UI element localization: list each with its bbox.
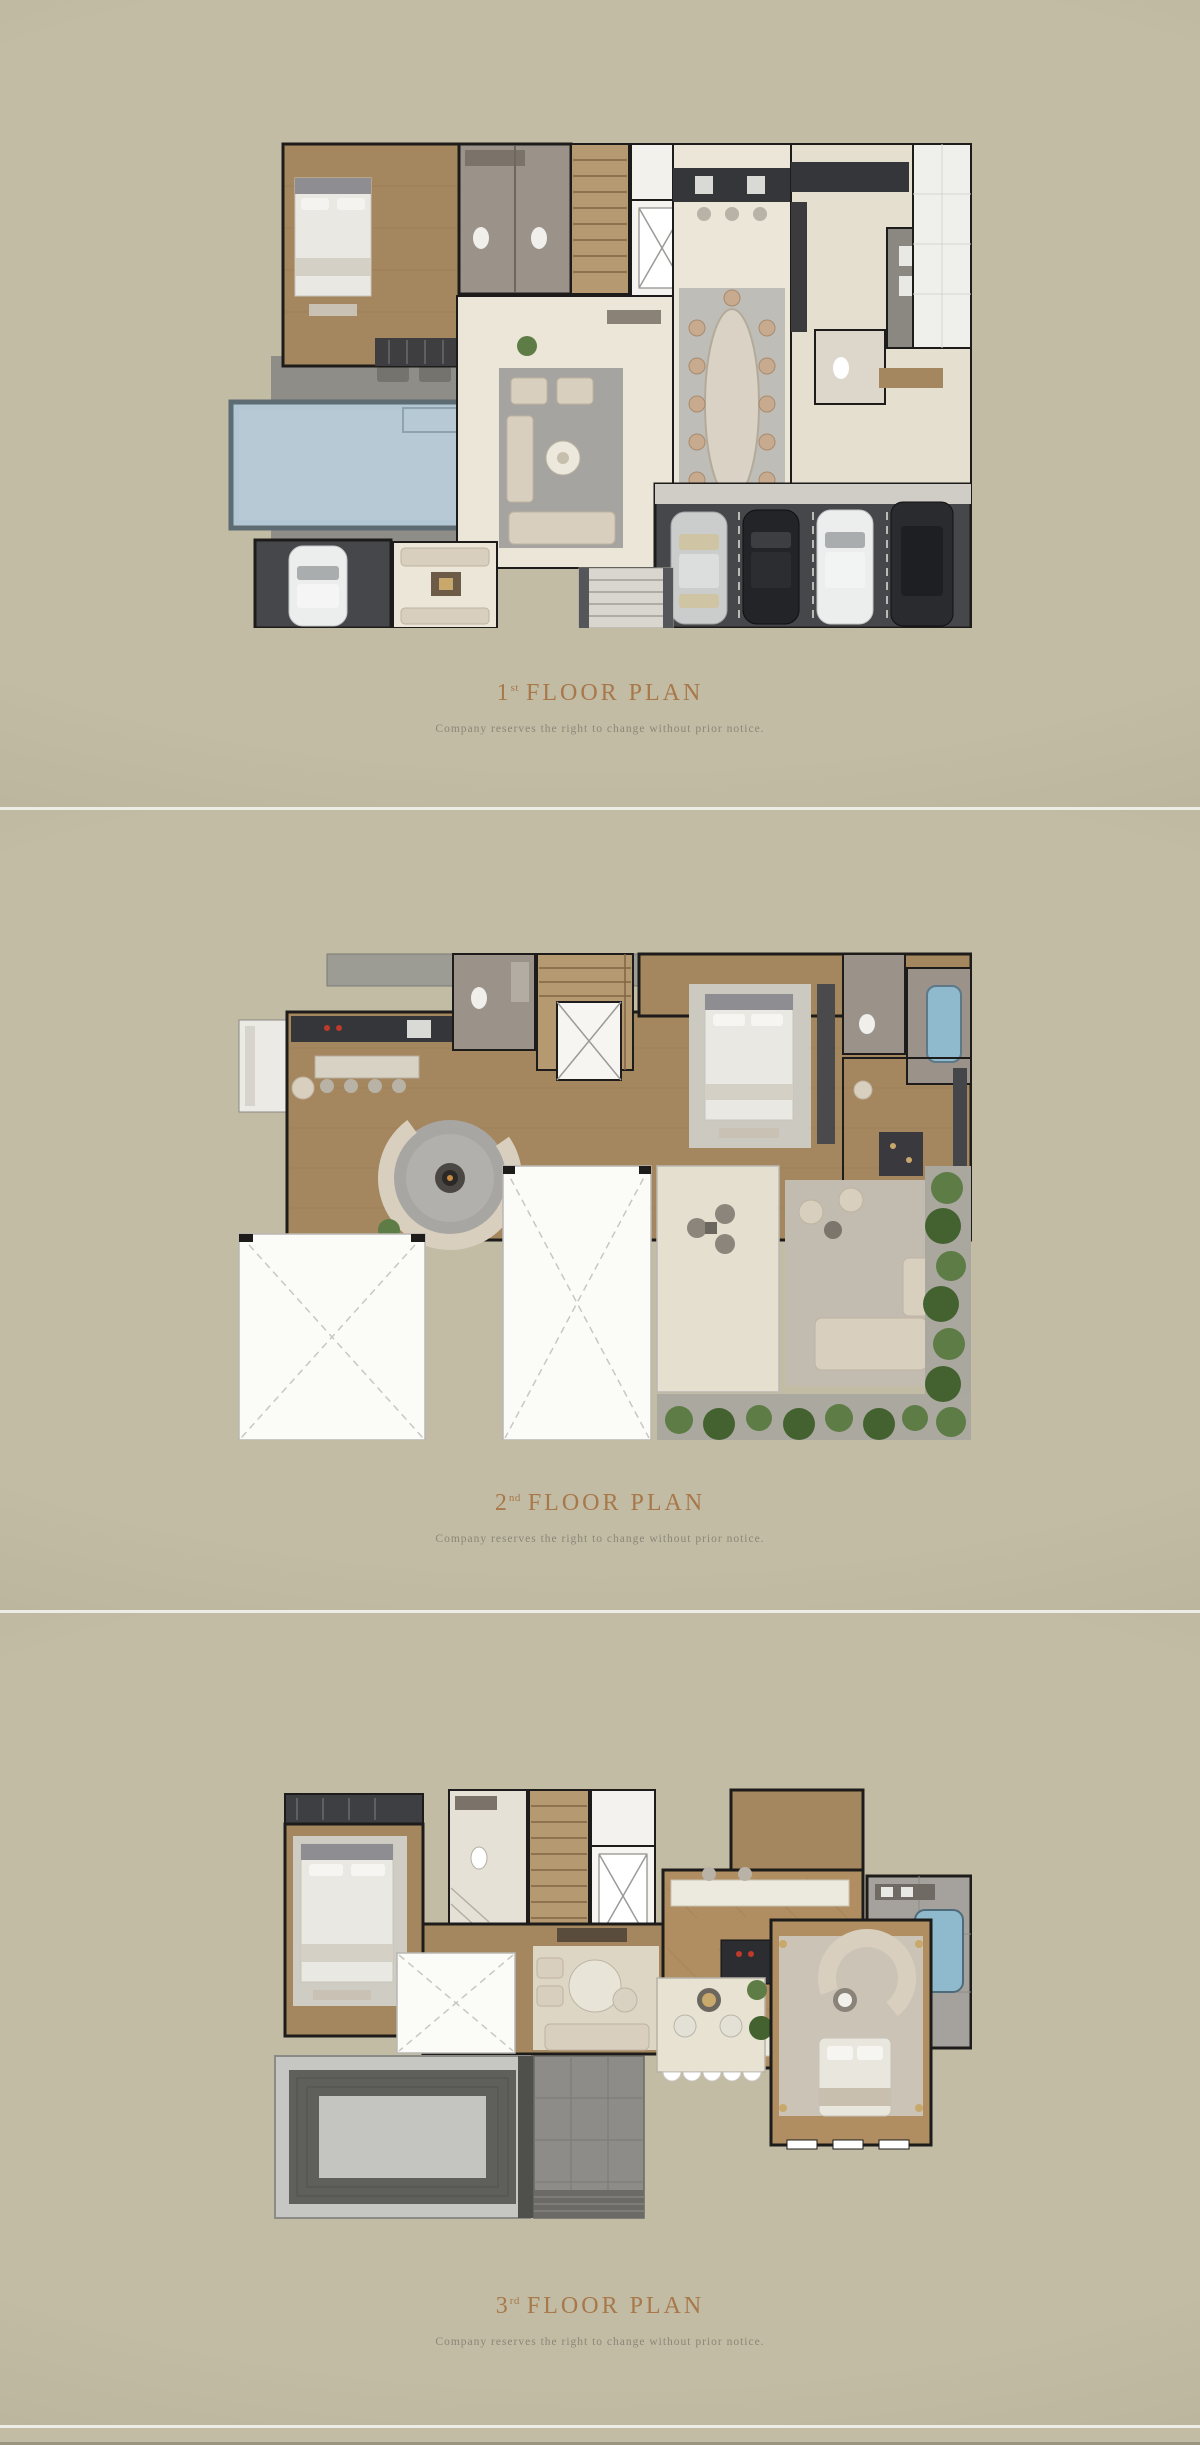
bedroom-suite xyxy=(283,144,459,366)
floor-title-text: FLOOR PLAN xyxy=(526,680,703,706)
floor-plan-brochure-page: 1stFLOOR PLAN Company reserves the right… xyxy=(0,0,1200,2445)
bathroom-4-tub xyxy=(907,968,971,1084)
floor-number: 3 xyxy=(496,2293,510,2319)
car-suv-black xyxy=(891,502,953,626)
bathroom-master xyxy=(459,144,571,294)
floor-1-caption: 1stFLOOR PLAN Company reserves the right… xyxy=(0,680,1200,735)
floor-ordinal: st xyxy=(511,682,519,694)
floor-ordinal: nd xyxy=(509,1492,521,1504)
stair-landing-3 xyxy=(591,1790,655,1846)
terrace-2 xyxy=(657,1166,779,1392)
next-section-peek xyxy=(0,2428,1200,2442)
car-black xyxy=(743,510,799,624)
void-double-height-3 xyxy=(397,1953,515,2053)
floor-3-caption: 3rdFLOOR PLAN Company reserves the right… xyxy=(0,2293,1200,2348)
bathroom-3 xyxy=(843,954,905,1054)
floor-number: 2 xyxy=(495,1490,509,1516)
floor-title-text: FLOOR PLAN xyxy=(527,2293,704,2319)
elevator-2 xyxy=(557,1002,621,1080)
floor-3-section: 3rdFLOOR PLAN Company reserves the right… xyxy=(0,1613,1200,2428)
floor-3-title: 3rdFLOOR PLAN xyxy=(0,2293,1200,2320)
void-double-height-left xyxy=(239,1234,425,1440)
garage-main xyxy=(655,484,971,628)
floor-ordinal: rd xyxy=(510,2295,520,2307)
car-silver xyxy=(671,512,727,624)
kitchen-pantry-wing xyxy=(791,144,971,490)
family-room-2 xyxy=(785,1180,939,1386)
floor-2-disclaimer: Company reserves the right to change wit… xyxy=(0,1533,1200,1545)
floor-2-plan-illustration xyxy=(227,928,972,1440)
patio-tiles xyxy=(518,2056,644,2218)
roof-terrace xyxy=(275,2056,530,2218)
bathroom-5 xyxy=(449,1790,527,1924)
living-room-3 xyxy=(533,1946,659,2050)
car-white-2 xyxy=(289,546,347,626)
family-room-3 xyxy=(771,1920,931,2149)
floor-1-disclaimer: Company reserves the right to change wit… xyxy=(0,723,1200,735)
entry-steps xyxy=(579,568,673,628)
floor-1-plan-illustration xyxy=(227,116,972,628)
curtain-scallops xyxy=(663,2072,761,2081)
floor-2-title: 2ndFLOOR PLAN xyxy=(0,1490,1200,1517)
closet-strip xyxy=(285,1794,423,1824)
floor-1-title: 1stFLOOR PLAN xyxy=(0,680,1200,707)
floor-1-section: 1stFLOOR PLAN Company reserves the right… xyxy=(0,0,1200,810)
sitting-lounge xyxy=(393,542,497,628)
garage-left xyxy=(255,540,391,628)
car-white xyxy=(817,510,873,624)
floor-title-text: FLOOR PLAN xyxy=(528,1490,705,1516)
floor-3-disclaimer: Company reserves the right to change wit… xyxy=(0,2336,1200,2348)
corridor-floor-3 xyxy=(731,1790,863,1874)
terrace-3 xyxy=(657,1978,773,2081)
living-room xyxy=(499,368,623,548)
void-double-height-center xyxy=(503,1166,651,1440)
bathroom-2 xyxy=(453,954,535,1050)
console-table xyxy=(557,1928,627,1942)
floor-2-section: 2ndFLOOR PLAN Company reserves the right… xyxy=(0,810,1200,1613)
floor-number: 1 xyxy=(497,680,511,706)
balcony-ledge-left xyxy=(239,1020,287,1112)
staircase xyxy=(571,144,629,294)
floor-2-caption: 2ndFLOOR PLAN Company reserves the right… xyxy=(0,1490,1200,1545)
floor-3-plan-illustration xyxy=(227,1738,972,2238)
